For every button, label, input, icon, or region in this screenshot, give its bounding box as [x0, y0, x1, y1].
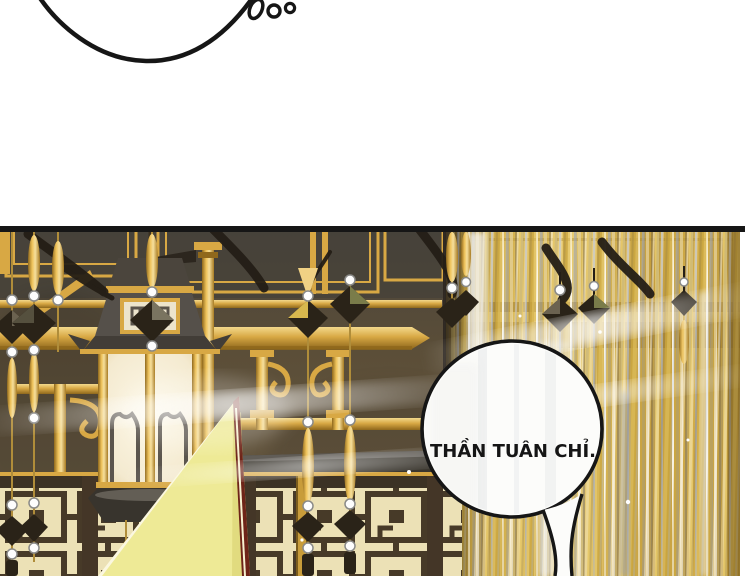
palace-panel — [0, 232, 740, 576]
speech-bubble-text: THẦN TUÂN CHỈ. — [423, 441, 603, 463]
panel-illustration — [0, 232, 740, 576]
thought-trail-circle — [268, 5, 280, 17]
thought-bubble-trail — [0, 0, 745, 226]
thought-trail-circle — [285, 3, 294, 12]
comic-page: THẦN TUÂN CHỈ. — [0, 0, 745, 576]
thought-bubble-arc — [36, 0, 251, 61]
